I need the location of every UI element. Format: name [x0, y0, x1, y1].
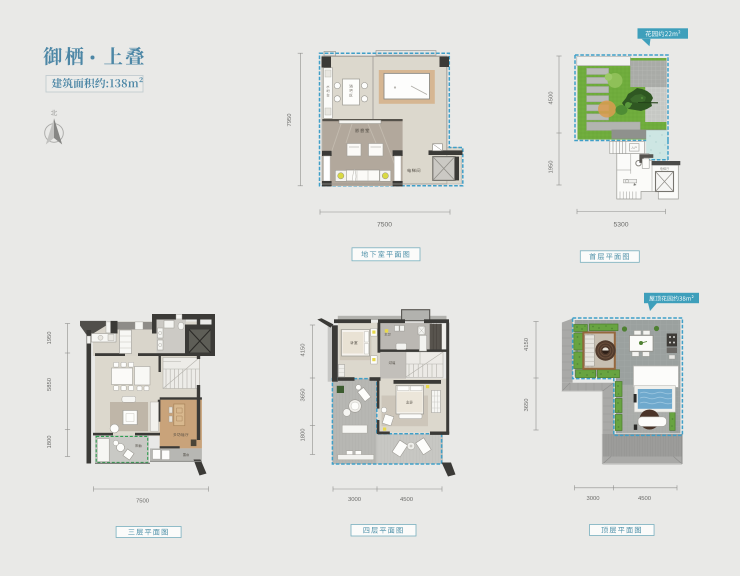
svg-text:5850: 5850 [47, 377, 53, 391]
svg-text:3650: 3650 [524, 398, 530, 412]
svg-text:3000: 3000 [348, 497, 362, 503]
svg-text:4150: 4150 [301, 343, 307, 357]
svg-text:7950: 7950 [287, 113, 293, 127]
svg-text:4500: 4500 [638, 496, 652, 502]
svg-text:7500: 7500 [136, 499, 150, 505]
svg-text:3650: 3650 [301, 388, 307, 402]
svg-text:1950: 1950 [47, 331, 53, 345]
svg-text:7500: 7500 [377, 222, 392, 229]
svg-text:1950: 1950 [549, 160, 555, 174]
svg-text:4500: 4500 [400, 497, 414, 503]
svg-text:4500: 4500 [549, 91, 555, 105]
svg-text:1800: 1800 [301, 428, 307, 442]
svg-text:5300: 5300 [613, 222, 628, 229]
svg-text:4150: 4150 [524, 337, 530, 351]
svg-text:1800: 1800 [47, 435, 53, 449]
svg-text:3000: 3000 [586, 496, 600, 502]
